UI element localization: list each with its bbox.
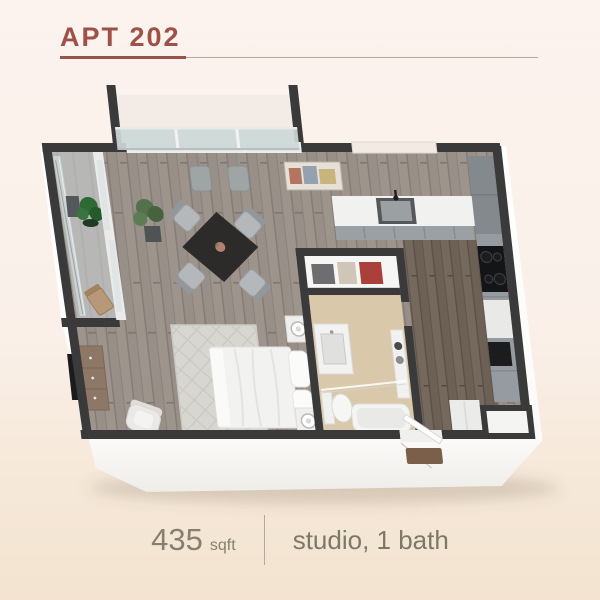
pillow (288, 351, 311, 387)
wall-art (284, 162, 343, 190)
bathtub (351, 404, 412, 432)
kitchen-window (352, 142, 437, 153)
entry-closet (483, 408, 532, 436)
area-caption: 435 sqft (151, 522, 236, 558)
oven (488, 342, 513, 366)
plant-pot (144, 226, 162, 242)
pendant-lamp (189, 166, 212, 191)
closet-north-wall (295, 248, 404, 256)
bathroom-vanity (314, 324, 354, 374)
balcony-left-south-wall (61, 318, 120, 327)
closet-bathroom-divider (308, 288, 401, 295)
doormat (405, 448, 443, 464)
area-value: 435 (151, 522, 203, 558)
wall-south-west-segment (80, 430, 400, 439)
plan-caption: 435 sqft studio, 1 bath (0, 505, 600, 575)
area-unit: sqft (210, 537, 236, 555)
balcony-top-railing (115, 127, 300, 150)
pendant-lamp (227, 166, 250, 191)
caption-divider (264, 515, 265, 565)
floor-plan-page: APT 202 (0, 0, 600, 600)
cooktop (477, 246, 508, 292)
unit-details: studio, 1 bath (293, 525, 449, 556)
dishwasher (483, 300, 513, 338)
